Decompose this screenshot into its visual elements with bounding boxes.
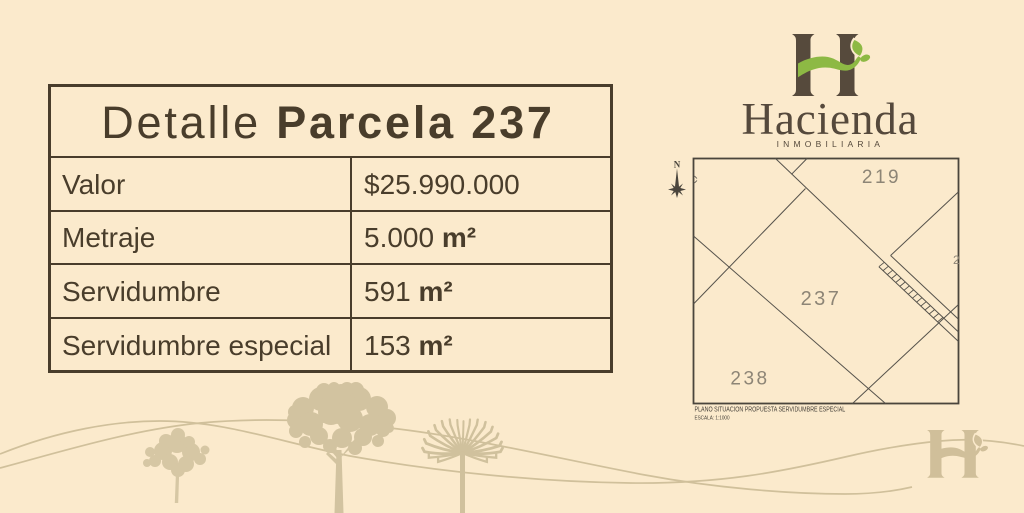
svg-text:237: 237 (801, 288, 842, 310)
svg-text:INMOBILIARIA: INMOBILIARIA (777, 139, 885, 149)
svg-text:219: 219 (862, 167, 901, 188)
svg-text:Hacienda: Hacienda (741, 94, 918, 144)
svg-text:PLANO SITUACION PROPUESTA SER: PLANO SITUACION PROPUESTA SERVIDUMBRE ES… (695, 406, 846, 414)
svg-text:ESCALA: 1:1000: ESCALA: 1:1000 (695, 415, 730, 422)
svg-text:2: 2 (953, 253, 960, 267)
svg-text:N: N (674, 160, 681, 170)
svg-text:238: 238 (730, 369, 769, 390)
